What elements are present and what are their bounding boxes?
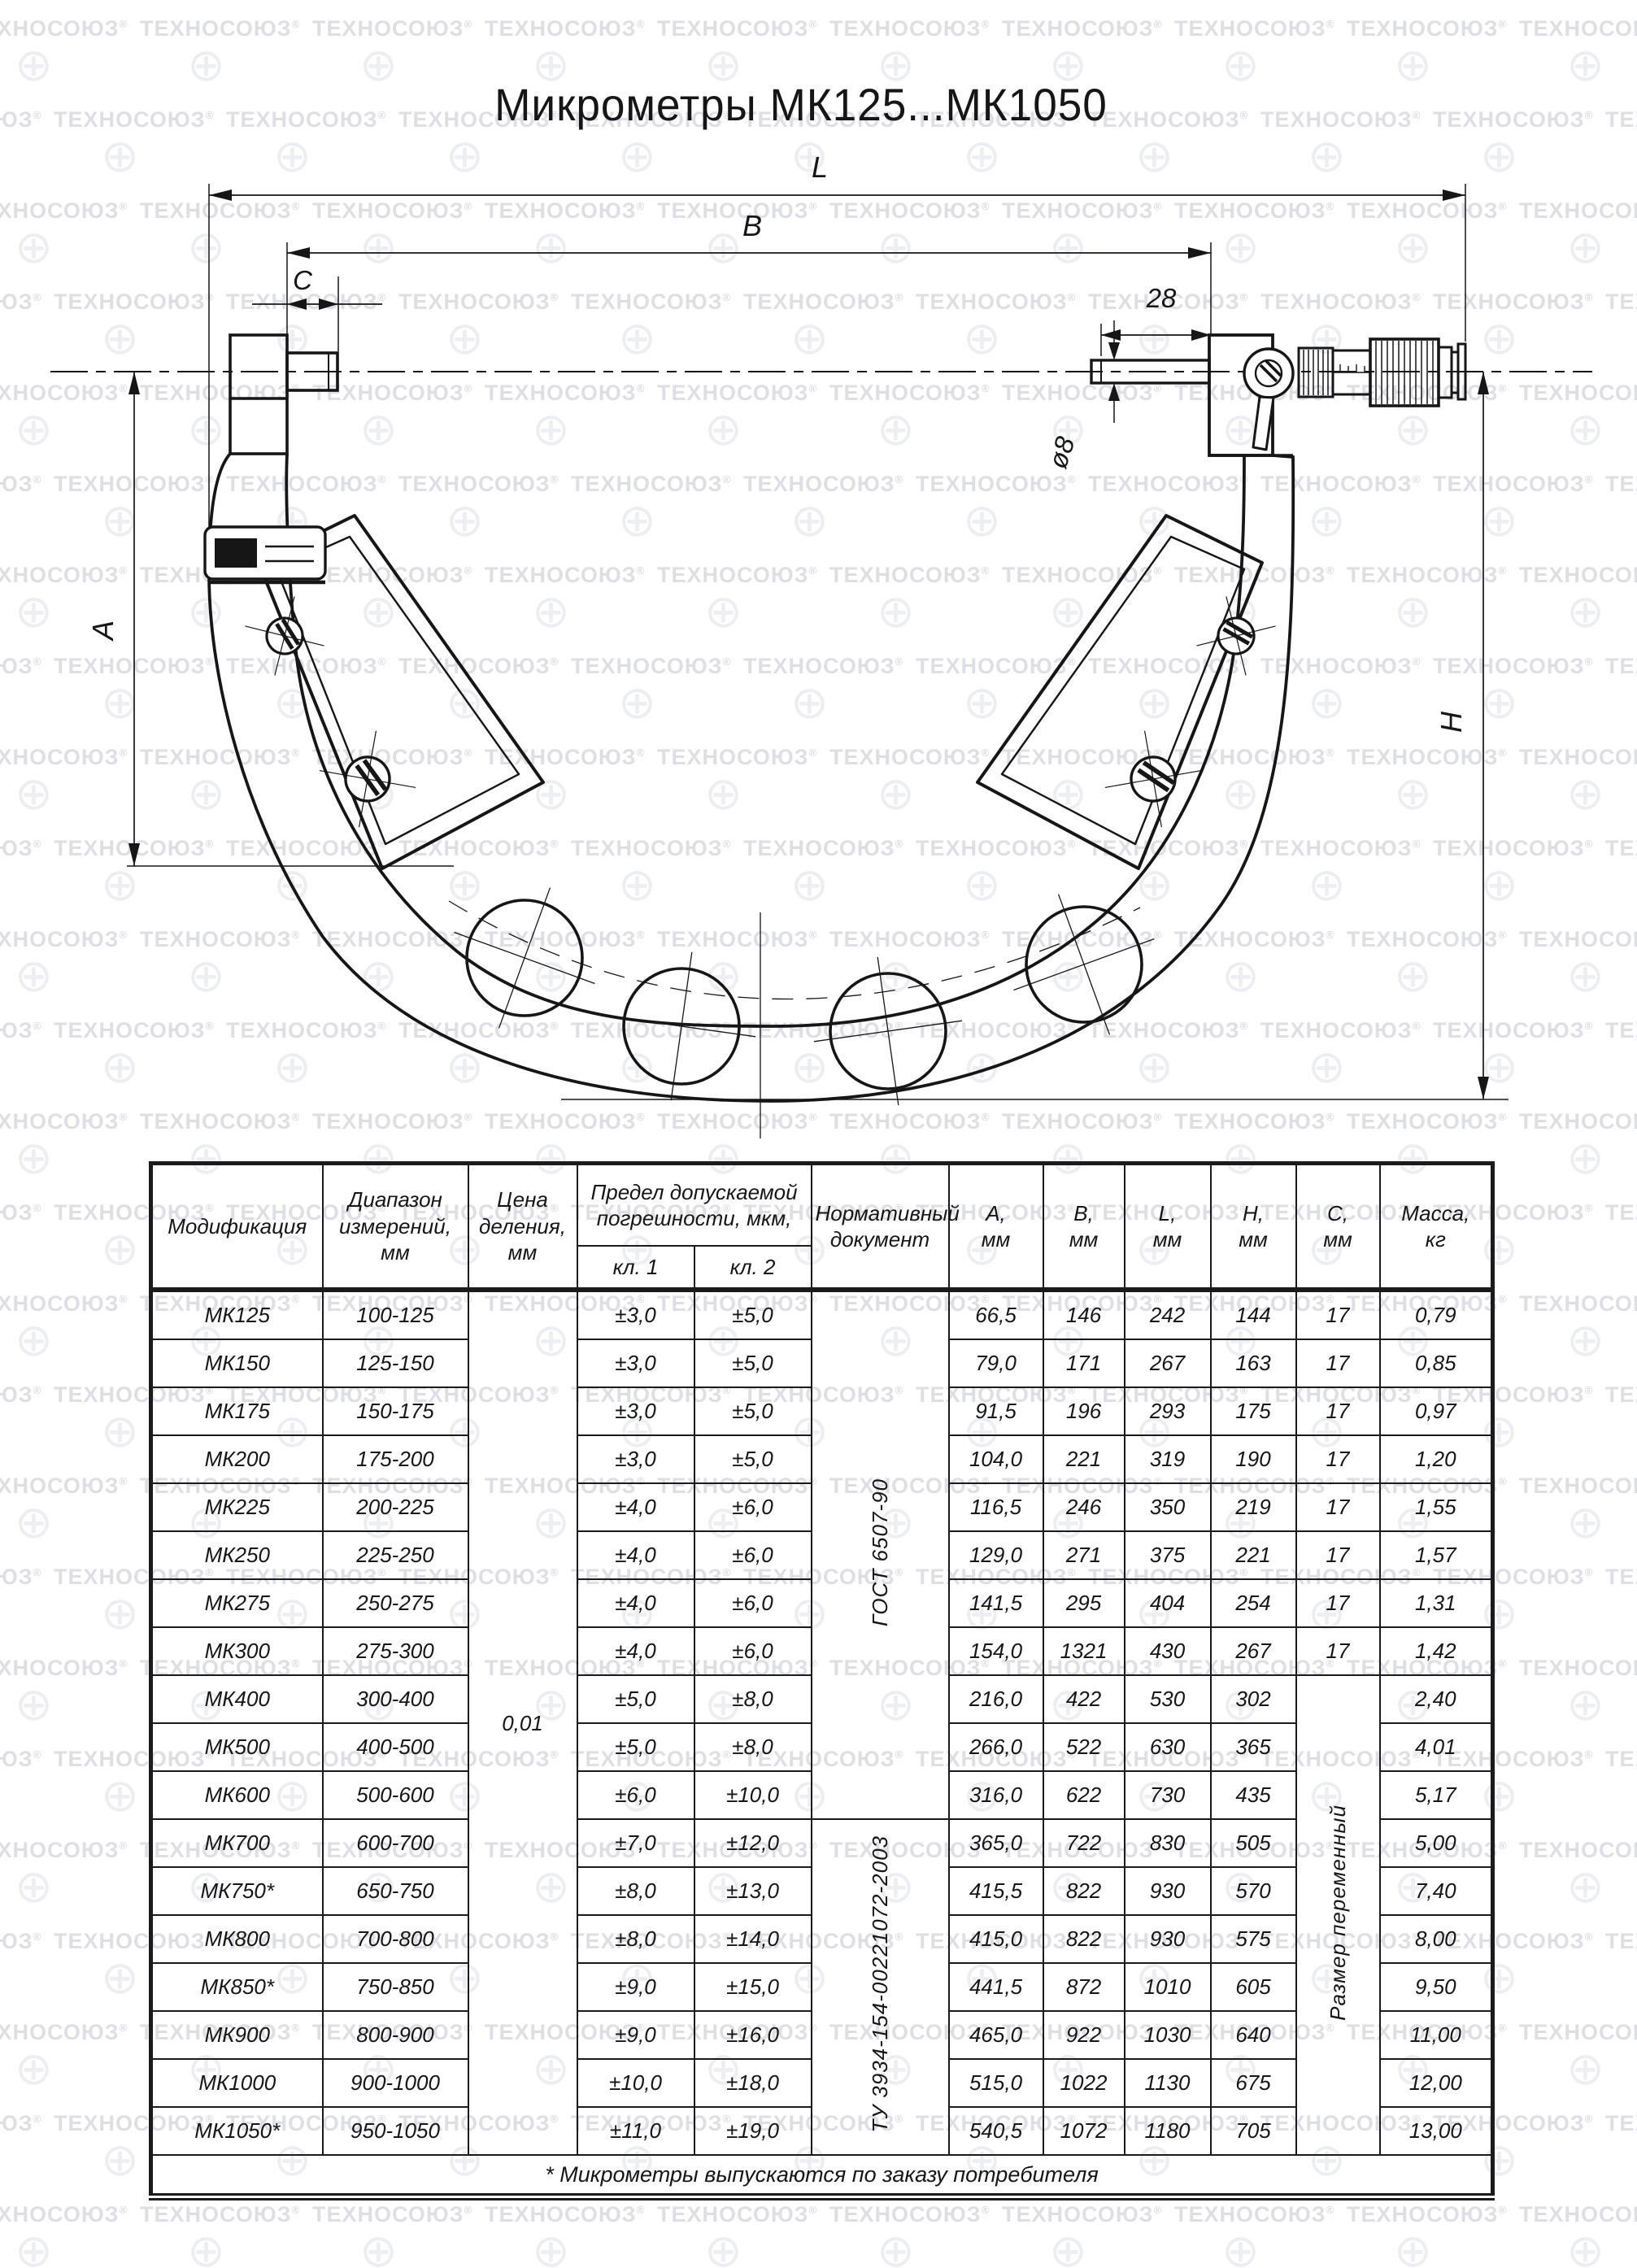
watermark-text: ТЕХНОСОЮЗ® [0,1838,128,1863]
dim-label-C: C [293,265,313,295]
cell-c: 17 [1296,1435,1380,1483]
watermark-globe-icon: ⊕ [15,2046,53,2092]
cell-h: 144 [1211,1290,1296,1339]
cell-mass: 11,00 [1380,2011,1493,2059]
cell-h: 221 [1211,1531,1296,1579]
cell-a: 441,5 [949,1963,1043,2011]
table-footnote: * Микрометры выпускаются по заказу потре… [151,2155,1493,2197]
cell-range: 700-800 [323,1915,468,1963]
cell-range: 125-150 [323,1339,468,1387]
spec-table-body: МК125100-1250,01±3,0±5,0ГОСТ 6507-9066,5… [151,1290,1493,2155]
cell-class2: ±10,0 [694,1771,812,1819]
dim-label-L: L [812,150,828,184]
cell-mass: 2,40 [1380,1675,1493,1723]
spec-table-head: Модификация Диапазон измерений, мм Цена … [151,1164,1493,1291]
watermark-globe-icon: ⊕ [15,1500,53,1545]
arrow-icon [1188,247,1211,259]
lightening-holes [429,862,1180,1116]
cell-modification: МК900 [151,2011,323,2059]
cell-class1: ±9,0 [577,1963,694,2011]
cell-h: 365 [1211,1723,1296,1771]
watermark-text: ТЕХНОСОЮЗ® [140,2202,300,2227]
cell-modification: МК1000 [151,2059,323,2107]
cell-h: 163 [1211,1339,1296,1387]
watermark-text: ТЕХНОСОЮЗ® [0,1200,41,1225]
watermark-globe-icon: ⊕ [359,2228,398,2268]
watermark-text: ТЕХНОСОЮЗ® [1605,1200,1637,1225]
dim-label-H: H [1435,711,1468,733]
watermark-globe-icon: ⊕ [101,1773,139,1818]
watermark-text: ТЕХНОСОЮЗ® [0,1291,128,1317]
arrow-icon [128,372,140,394]
watermark-text: ТЕХНОСОЮЗ® [1605,1382,1637,1408]
col-header-modification: Модификация [151,1164,323,1291]
cell-a: 266,0 [949,1723,1043,1771]
watermark-text: ТЕХНОСОЮЗ® [485,2202,645,2227]
micrometer-drawing-svg: L B C 28 ø8 A H [0,0,1637,1163]
cell-class2: ±16,0 [694,2011,812,2059]
cell-class2: ±5,0 [694,1435,812,1483]
watermark-text: ТЕХНОСОЮЗ® [0,1929,41,1954]
cell-b: 722 [1043,1819,1125,1867]
cell-h: 267 [1211,1627,1296,1675]
cell-range: 900-1000 [323,2059,468,2107]
cell-doc-gost: ГОСТ 6507-90 [812,1290,949,1819]
cell-class2: ±8,0 [694,1723,812,1771]
cell-a: 465,0 [949,2011,1043,2059]
cell-range: 950-1050 [323,2107,468,2155]
cell-class1: ±3,0 [577,1435,694,1483]
cell-range: 400-500 [323,1723,468,1771]
cell-range: 600-700 [323,1819,468,1867]
cell-h: 435 [1211,1771,1296,1819]
cell-b: 246 [1043,1483,1125,1531]
watermark-globe-icon: ⊕ [1566,1864,1604,1909]
watermark-globe-icon: ⊕ [1566,1682,1604,1727]
watermark-globe-icon: ⊕ [15,2228,53,2268]
cell-modification: МК600 [151,1771,323,1819]
col-header-class2: кл. 2 [694,1246,812,1290]
dim-label-A: A [86,620,120,642]
cell-class1: ±10,0 [577,2059,694,2107]
cell-c-merged-text: Размер переменный [1326,1804,1351,2021]
cell-h: 505 [1211,1819,1296,1867]
cell-class1: ±3,0 [577,1290,694,1339]
cell-h: 570 [1211,1867,1296,1915]
watermark-globe-icon: ⊕ [1394,2228,1432,2268]
cell-b: 822 [1043,1867,1125,1915]
cell-l: 1180 [1125,2107,1211,2155]
cell-l: 930 [1125,1867,1211,1915]
cell-mass: 1,31 [1380,1579,1493,1627]
watermark-text: ТЕХНОСОЮЗ® [1605,1747,1637,1772]
cell-a: 154,0 [949,1627,1043,1675]
cell-a: 365,0 [949,1819,1043,1867]
cell-class1: ±4,0 [577,1579,694,1627]
cell-l: 430 [1125,1627,1211,1675]
cell-l: 242 [1125,1290,1211,1339]
watermark-globe-icon: ⊕ [704,2228,742,2268]
cell-l: 350 [1125,1483,1211,1531]
cell-h: 675 [1211,2059,1296,2107]
cell-class1: ±7,0 [577,1819,694,1867]
cell-c: 17 [1296,1339,1380,1387]
cell-b: 146 [1043,1290,1125,1339]
cell-class1: ±9,0 [577,2011,694,2059]
arrow-icon [128,843,140,866]
cell-class2: ±5,0 [694,1339,812,1387]
table-row: МК700600-700±7,0±12,0ТУ 3934-154-0022107… [151,1819,1493,1867]
watermark-text: ТЕХНОСОЮЗ® [1519,2202,1637,2227]
lock-lever [1244,349,1293,450]
watermark-text: ТЕХНОСОЮЗ® [312,2202,472,2227]
page-title: Микрометры МК125...МК1050 [494,78,1108,131]
watermark-text: ТЕХНОСОЮЗ® [1002,2202,1162,2227]
cell-class2: ±14,0 [694,1915,812,1963]
cell-l: 293 [1125,1387,1211,1435]
cell-mass: 8,00 [1380,1915,1493,1963]
col-header-division: Цена деления, мм [468,1164,577,1291]
cell-b: 872 [1043,1963,1125,2011]
spec-table: Модификация Диапазон измерений, мм Цена … [149,1161,1495,2201]
cell-l: 1010 [1125,1963,1211,2011]
cell-h: 705 [1211,2107,1296,2155]
cell-mass: 0,79 [1380,1290,1493,1339]
anvil-block [230,335,337,454]
watermark-globe-icon: ⊕ [1566,1500,1604,1545]
cell-l: 404 [1125,1579,1211,1627]
cell-range: 175-200 [323,1435,468,1483]
cell-mass: 4,01 [1380,1723,1493,1771]
cell-class2: ±5,0 [694,1387,812,1435]
cell-a: 515,0 [949,2059,1043,2107]
cell-modification: МК225 [151,1483,323,1531]
cell-h: 302 [1211,1675,1296,1723]
micrometer-drawing: L B C 28 ø8 A H [0,0,1637,1163]
cell-range: 200-225 [323,1483,468,1531]
cell-l: 319 [1125,1435,1211,1483]
cell-range: 100-125 [323,1290,468,1339]
cell-h: 219 [1211,1483,1296,1531]
arrow-icon [287,298,307,310]
cell-class2: ±6,0 [694,1531,812,1579]
watermark-globe-icon: ⊕ [877,2228,915,2268]
cell-class1: ±5,0 [577,1723,694,1771]
cell-doc-tu-text: ТУ 3934-154-00221072-2003 [868,1835,893,2132]
cell-h: 175 [1211,1387,1296,1435]
cell-range: 750-850 [323,1963,468,2011]
cell-a: 104,0 [949,1435,1043,1483]
watermark-text: ТЕХНОСОЮЗ® [0,1747,41,1772]
watermark-text: ТЕХНОСОЮЗ® [0,1565,41,1590]
table-row: МК125100-1250,01±3,0±5,0ГОСТ 6507-9066,5… [151,1290,1493,1339]
watermark-globe-icon: ⊕ [101,2137,139,2183]
watermark-globe-icon: ⊕ [15,1682,53,1727]
cell-a: 141,5 [949,1579,1043,1627]
dim-label-B: B [742,209,762,242]
watermark-text: ТЕХНОСОЮЗ® [1519,1656,1637,1681]
cell-mass: 5,00 [1380,1819,1493,1867]
watermark-globe-icon: ⊕ [532,2228,570,2268]
screw-icon [1096,722,1209,835]
cell-mass: 7,40 [1380,1867,1493,1915]
dim-label-dia8: ø8 [1043,433,1081,472]
cell-modification: МК275 [151,1579,323,1627]
cell-range: 150-175 [323,1387,468,1435]
col-header-b: В, мм [1043,1164,1125,1291]
cell-l: 930 [1125,1915,1211,1963]
col-header-error-limit: Предел допускаемой погрешности, мкм, [577,1164,812,1247]
cell-class1: ±4,0 [577,1531,694,1579]
cell-range: 650-750 [323,1867,468,1915]
cell-modification: МК500 [151,1723,323,1771]
cell-mass: 12,00 [1380,2059,1493,2107]
watermark-globe-icon: ⊕ [101,1408,139,1454]
cell-class1: ±3,0 [577,1387,694,1435]
watermark-text: ТЕХНОСОЮЗ® [0,2202,128,2227]
cell-class2: ±8,0 [694,1675,812,1723]
col-header-l: L, мм [1125,1164,1211,1291]
cell-mass: 0,85 [1380,1339,1493,1387]
cell-b: 1321 [1043,1627,1125,1675]
cell-modification: МК850* [151,1963,323,2011]
col-header-class1: кл. 1 [577,1246,694,1290]
cell-class1: ±8,0 [577,1915,694,1963]
cell-b: 171 [1043,1339,1125,1387]
watermark-text: ТЕХНОСОЮЗ® [0,1656,128,1681]
cell-class1: ±6,0 [577,1771,694,1819]
screw-icon [1186,586,1285,685]
cell-range: 300-400 [323,1675,468,1723]
cell-a: 79,0 [949,1339,1043,1387]
cell-modification: МК750* [151,1867,323,1915]
cell-range: 225-250 [323,1531,468,1579]
cell-mass: 0,97 [1380,1387,1493,1435]
cell-modification: МК150 [151,1339,323,1387]
watermark-text: ТЕХНОСОЮЗ® [1519,1291,1637,1317]
cell-range: 500-600 [323,1771,468,1819]
cell-a: 216,0 [949,1675,1043,1723]
cell-c: 17 [1296,1483,1380,1531]
right-insulating-pad [977,516,1262,868]
spec-table-foot: * Микрометры выпускаются по заказу потре… [151,2155,1493,2197]
watermark-globe-icon: ⊕ [101,1226,139,1272]
arrow-icon [319,298,338,310]
cell-b: 522 [1043,1723,1125,1771]
cell-modification: МК125 [151,1290,323,1339]
watermark-globe-icon: ⊕ [15,1317,53,1363]
cell-class1: ±3,0 [577,1339,694,1387]
col-header-c: С, мм [1296,1164,1380,1291]
cell-class1: ±4,0 [577,1483,694,1531]
cell-a: 540,5 [949,2107,1043,2155]
cell-modification: МК200 [151,1435,323,1483]
cell-class1: ±5,0 [577,1675,694,1723]
arrow-icon [1108,383,1120,401]
cell-class2: ±19,0 [694,2107,812,2155]
cell-c: 17 [1296,1531,1380,1579]
cell-a: 91,5 [949,1387,1043,1435]
cell-a: 415,0 [949,1915,1043,1963]
cell-range: 275-300 [323,1627,468,1675]
watermark-globe-icon: ⊕ [1049,2228,1087,2268]
cell-division: 0,01 [468,1290,577,2155]
cell-class1: ±4,0 [577,1627,694,1675]
cell-h: 605 [1211,1963,1296,2011]
watermark-text: ТЕХНОСОЮЗ® [1519,2020,1637,2045]
cell-b: 271 [1043,1531,1125,1579]
watermark-globe-icon: ⊕ [101,1955,139,2000]
cell-class2: ±5,0 [694,1290,812,1339]
watermark-text: ТЕХНОСОЮЗ® [1519,1474,1637,1499]
cell-modification: МК175 [151,1387,323,1435]
cell-h: 254 [1211,1579,1296,1627]
cell-h: 575 [1211,1915,1296,1963]
dim-label-28: 28 [1146,283,1177,313]
cell-c: 17 [1296,1290,1380,1339]
brand-logo-icon [215,538,257,568]
cell-range: 250-275 [323,1579,468,1627]
cell-modification: МК800 [151,1915,323,1963]
cell-a: 415,5 [949,1867,1043,1915]
arrow-icon [209,189,232,201]
watermark-text: ТЕХНОСОЮЗ® [0,1474,128,1499]
cell-class2: ±6,0 [694,1579,812,1627]
cell-mass: 1,55 [1380,1483,1493,1531]
cell-mass: 13,00 [1380,2107,1493,2155]
cell-class1: ±8,0 [577,1867,694,1915]
cell-l: 530 [1125,1675,1211,1723]
arrow-icon [1101,329,1121,341]
cell-l: 830 [1125,1819,1211,1867]
cell-l: 730 [1125,1771,1211,1819]
watermark-globe-icon: ⊕ [15,1864,53,1909]
cell-b: 822 [1043,1915,1125,1963]
cell-doc-tu: ТУ 3934-154-00221072-2003 [812,1819,949,2155]
watermark-text: ТЕХНОСОЮЗ® [1174,2202,1334,2227]
cell-c: 17 [1296,1627,1380,1675]
cell-class2: ±13,0 [694,1867,812,1915]
micrometer-head [1299,339,1465,406]
watermark-globe-icon: ⊕ [1566,2046,1604,2092]
cell-b: 196 [1043,1387,1125,1435]
cell-a: 116,5 [949,1483,1043,1531]
screw-icon [235,586,333,685]
cell-class2: ±6,0 [694,1627,812,1675]
cell-b: 422 [1043,1675,1125,1723]
watermark-globe-icon: ⊕ [1566,2228,1604,2268]
cell-b: 622 [1043,1771,1125,1819]
watermark-text: ТЕХНОСОЮЗ® [1605,1565,1637,1590]
watermark-text: ТЕХНОСОЮЗ® [1347,2202,1507,2227]
cell-b: 221 [1043,1435,1125,1483]
cell-c-merged: Размер переменный [1296,1675,1380,2155]
watermark-text: ТЕХНОСОЮЗ® [829,2202,990,2227]
watermark-globe-icon: ⊕ [1221,2228,1260,2268]
cell-modification: МК700 [151,1819,323,1867]
cell-class2: ±12,0 [694,1819,812,1867]
cell-mass: 5,17 [1380,1771,1493,1819]
cell-b: 1022 [1043,2059,1125,2107]
col-header-range: Диапазон измерений, мм [323,1164,468,1291]
watermark-globe-icon: ⊕ [101,1591,139,1636]
watermark-globe-icon: ⊕ [187,2228,225,2268]
cell-class2: ±6,0 [694,1483,812,1531]
col-header-mass: Масса, кг [1380,1164,1493,1291]
cell-modification: МК300 [151,1627,323,1675]
cell-a: 66,5 [949,1290,1043,1339]
watermark-text: ТЕХНОСОЮЗ® [1519,1838,1637,1863]
watermark-text: ТЕХНОСОЮЗ® [1605,1929,1637,1954]
cell-a: 129,0 [949,1531,1043,1579]
watermark-text: ТЕХНОСОЮЗ® [657,2202,817,2227]
spec-table-wrap: Модификация Диапазон измерений, мм Цена … [149,1161,1491,2201]
pitch-arc [449,901,1140,999]
cell-l: 375 [1125,1531,1211,1579]
cell-b: 295 [1043,1579,1125,1627]
watermark-text: ТЕХНОСОЮЗ® [0,1382,41,1408]
cell-b: 922 [1043,2011,1125,2059]
arrow-icon [1478,372,1489,394]
cell-l: 267 [1125,1339,1211,1387]
cell-b: 1072 [1043,2107,1125,2155]
watermark-text: ТЕХНОСОЮЗ® [1605,2111,1637,2136]
arrow-icon [287,247,310,259]
cell-a: 316,0 [949,1771,1043,1819]
cell-mass: 1,57 [1380,1531,1493,1579]
cell-modification: МК400 [151,1675,323,1723]
cell-class2: ±18,0 [694,2059,812,2107]
watermark-text: ТЕХНОСОЮЗ® [0,2020,128,2045]
cell-doc-gost-text: ГОСТ 6507-90 [868,1478,893,1626]
cell-h: 190 [1211,1435,1296,1483]
arrow-icon [1443,189,1465,201]
col-header-document: Нормативный документ [812,1164,949,1291]
cell-c: 17 [1296,1387,1380,1435]
cell-mass: 1,42 [1380,1627,1493,1675]
cell-class2: ±15,0 [694,1963,812,2011]
cell-h: 640 [1211,2011,1296,2059]
cell-modification: МК1050* [151,2107,323,2155]
watermark-globe-icon: ⊕ [1566,1317,1604,1363]
arrow-icon [1478,1077,1489,1099]
cell-modification: МК250 [151,1531,323,1579]
cell-l: 1030 [1125,2011,1211,2059]
cell-l: 630 [1125,1723,1211,1771]
cell-l: 1130 [1125,2059,1211,2107]
cell-c: 17 [1296,1579,1380,1627]
cell-mass: 9,50 [1380,1963,1493,2011]
watermark-text: ТЕХНОСОЮЗ® [0,2111,41,2136]
col-header-a: А, мм [949,1164,1043,1291]
cell-range: 800-900 [323,2011,468,2059]
cell-class1: ±11,0 [577,2107,694,2155]
cell-mass: 1,20 [1380,1435,1493,1483]
arrow-icon [1108,342,1120,360]
left-insulating-pad [205,516,543,868]
col-header-h: Н, мм [1211,1164,1296,1291]
